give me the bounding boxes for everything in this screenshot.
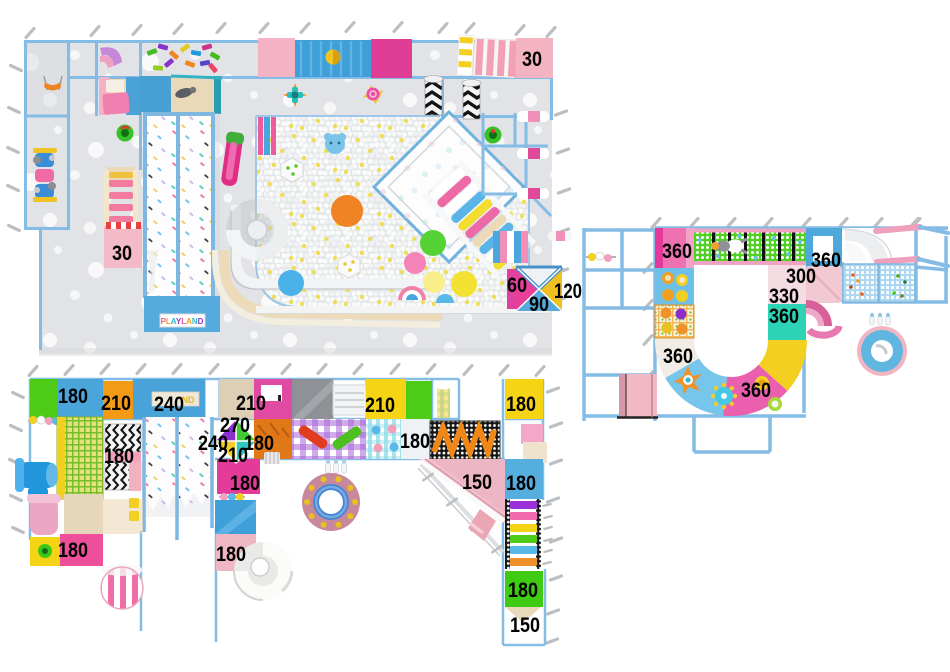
svg-text:180: 180	[508, 579, 538, 602]
svg-text:210: 210	[101, 392, 131, 415]
svg-text:180: 180	[244, 432, 274, 455]
svg-text:180: 180	[506, 472, 536, 495]
svg-text:180: 180	[104, 445, 134, 468]
svg-text:360: 360	[741, 379, 771, 402]
svg-text:180: 180	[58, 539, 88, 562]
svg-text:90: 90	[529, 293, 549, 316]
svg-text:210: 210	[236, 392, 266, 415]
svg-text:30: 30	[112, 242, 132, 265]
svg-text:360: 360	[769, 305, 799, 328]
svg-text:180: 180	[506, 393, 536, 416]
svg-text:360: 360	[663, 345, 693, 368]
svg-text:240: 240	[154, 393, 184, 416]
svg-text:210: 210	[365, 394, 395, 417]
svg-text:150: 150	[510, 614, 540, 637]
svg-text:120: 120	[554, 280, 582, 303]
svg-text:60: 60	[507, 274, 527, 297]
svg-text:150: 150	[462, 471, 492, 494]
svg-text:180: 180	[400, 430, 430, 453]
svg-text:PLAYLAND: PLAYLAND	[161, 317, 204, 326]
svg-text:360: 360	[662, 240, 692, 263]
svg-text:30: 30	[522, 48, 542, 71]
svg-text:180: 180	[58, 385, 88, 408]
svg-text:180: 180	[230, 472, 260, 495]
svg-text:180: 180	[216, 543, 246, 566]
svg-text:210: 210	[218, 444, 248, 467]
